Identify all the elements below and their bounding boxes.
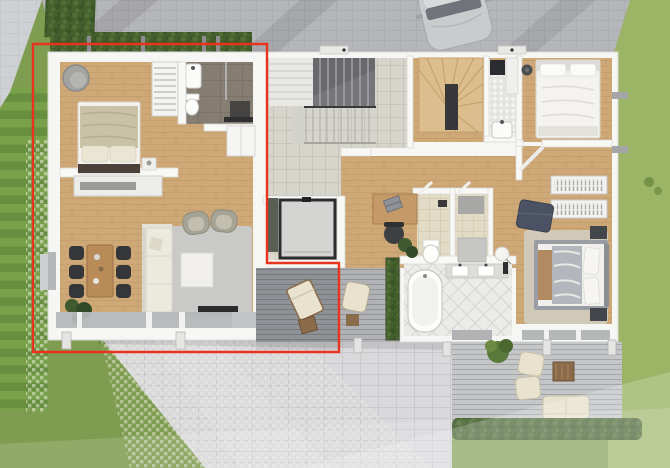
planter — [386, 258, 399, 340]
sink-2 — [478, 266, 494, 276]
office-chair-back — [384, 222, 404, 227]
counter-2 — [458, 238, 486, 262]
garden-shrub-1 — [644, 177, 654, 187]
pillow — [540, 64, 566, 76]
toilet — [186, 99, 199, 115]
slatted-cabinet — [152, 62, 178, 116]
outdoor-coffee-table — [553, 362, 574, 381]
headboard-right — [604, 244, 609, 306]
pillow — [583, 277, 600, 304]
shower-cabin — [280, 197, 335, 258]
headboard — [78, 164, 140, 173]
armchair-2 — [210, 209, 238, 234]
side-window — [48, 252, 56, 290]
armchair-1 — [182, 210, 211, 235]
double-bed-bottom — [534, 240, 609, 310]
counter — [506, 58, 518, 94]
deck-shadow — [256, 342, 340, 350]
entrance-door-left — [320, 46, 348, 54]
sink-1 — [452, 266, 468, 276]
winder-staircase — [419, 58, 483, 132]
outdoor-armchair-3 — [517, 351, 544, 377]
dark-counter — [224, 117, 253, 122]
wardrobe-cabinet — [227, 126, 255, 156]
utility-sink — [492, 122, 512, 138]
double-bed-top — [536, 60, 600, 138]
corner-sofa — [142, 224, 172, 316]
ottoman — [516, 199, 554, 232]
pillow — [110, 146, 136, 162]
floor-plan-screenshot — [0, 0, 670, 468]
gray-cabinet — [458, 196, 484, 214]
towel-rail — [503, 262, 508, 274]
stair-core — [445, 84, 458, 130]
outdoor-armchair-mid — [341, 281, 370, 313]
bathroom-ledge — [452, 330, 492, 340]
appliance — [490, 60, 505, 75]
pillow — [583, 247, 601, 274]
shower-mat — [230, 101, 250, 117]
nightstand-top — [590, 226, 607, 239]
toilet-2 — [423, 245, 439, 263]
coffee-table — [181, 253, 213, 287]
side-table-2 — [346, 314, 359, 326]
door-handle-2 — [510, 48, 513, 51]
ceiling-lamp-center — [525, 68, 529, 72]
pillow — [82, 146, 108, 162]
side-window-sill — [40, 254, 48, 290]
door-handle — [342, 48, 345, 51]
garden-shrub-2 — [654, 187, 662, 195]
entrance-door-right — [498, 46, 526, 54]
pillow — [570, 64, 596, 76]
nightstand-bottom — [590, 308, 607, 321]
throw-pillow — [149, 237, 163, 251]
nightstand-decor — [147, 161, 152, 166]
terrace-door-glass — [232, 312, 258, 328]
window-band-left — [56, 312, 258, 328]
floor-plan-rendering — [0, 0, 670, 468]
outdoor-armchair-4 — [515, 376, 541, 400]
bathtub-inner — [412, 276, 438, 326]
window-band-bedroom — [522, 330, 610, 340]
small-sink — [438, 200, 447, 207]
double-bed-left — [78, 102, 140, 174]
round-lounge-chair — [63, 65, 89, 91]
dining-set — [69, 245, 131, 298]
sideboard — [74, 176, 162, 196]
